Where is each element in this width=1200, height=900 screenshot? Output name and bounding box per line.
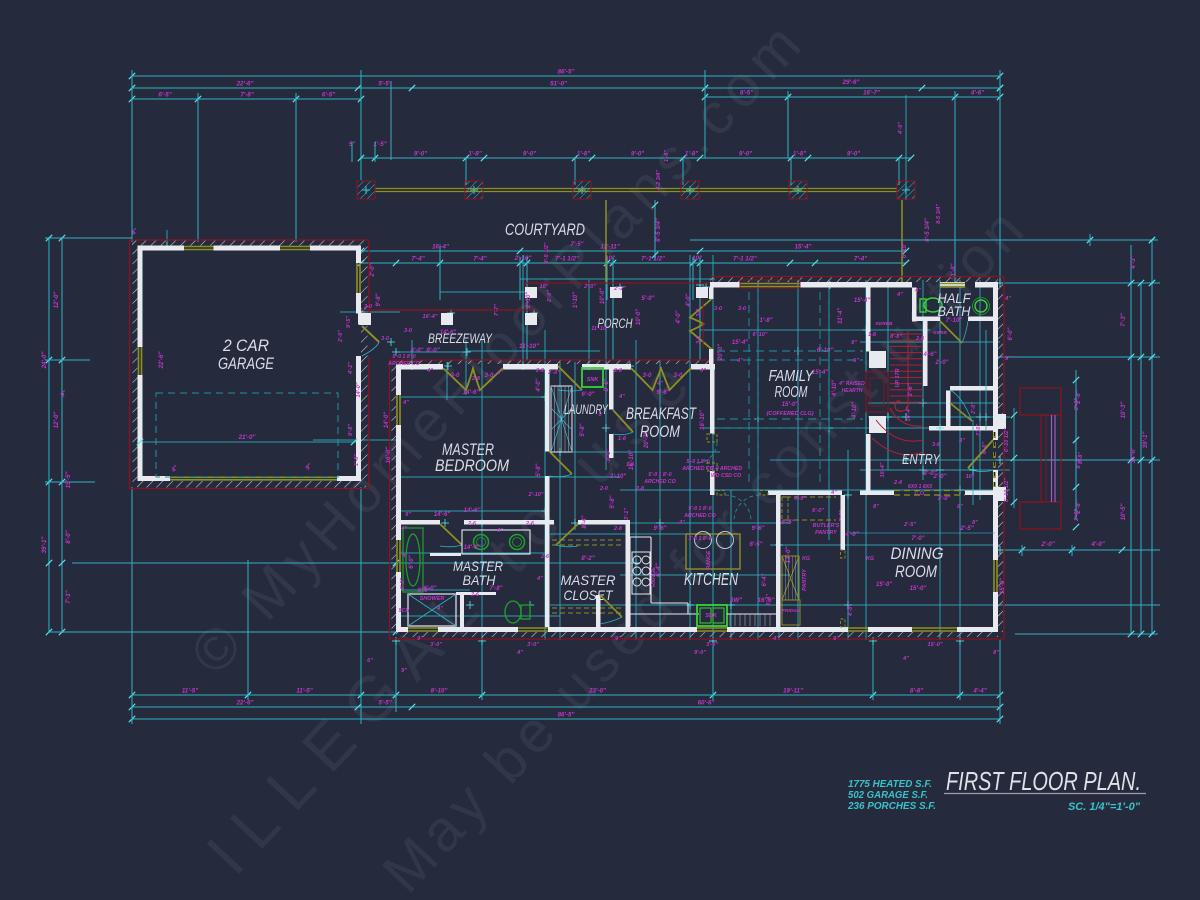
svg-text:4'-0": 4'-0" bbox=[844, 531, 858, 538]
svg-text:14'-0": 14'-0" bbox=[464, 544, 481, 551]
svg-text:4": 4" bbox=[1004, 296, 1011, 302]
svg-text:22'-6": 22'-6" bbox=[236, 81, 254, 88]
svg-text:14'-6": 14'-6" bbox=[464, 507, 481, 514]
svg-text:2'-6": 2'-6" bbox=[1074, 509, 1080, 522]
svg-text:7'-1": 7'-1" bbox=[65, 590, 72, 603]
svg-text:4": 4" bbox=[902, 656, 909, 662]
svg-text:3-6: 3-6 bbox=[932, 442, 941, 448]
svg-text:7'-0": 7'-0" bbox=[911, 535, 924, 542]
svg-text:23'-0": 23'-0" bbox=[588, 688, 606, 695]
svg-text:2-6: 2-6 bbox=[525, 521, 535, 527]
svg-text:34'-0": 34'-0" bbox=[1130, 447, 1137, 464]
svg-text:29'-6": 29'-6" bbox=[842, 79, 860, 86]
svg-text:4": 4" bbox=[402, 400, 409, 406]
svg-text:9'-5 1/2": 9'-5 1/2" bbox=[544, 242, 550, 263]
svg-text:8'-5 3/4": 8'-5 3/4" bbox=[655, 218, 662, 242]
svg-text:2'-8": 2'-8" bbox=[1074, 398, 1080, 411]
svg-text:16'-10": 16'-10" bbox=[700, 410, 706, 430]
svg-text:6'-4": 6'-4" bbox=[762, 573, 768, 586]
svg-text:6'-0": 6'-0" bbox=[982, 442, 988, 454]
svg-text:2'-5": 2'-5" bbox=[903, 522, 916, 528]
svg-text:2-8: 2-8 bbox=[613, 526, 623, 532]
svg-text:BEDROOM: BEDROOM bbox=[435, 456, 510, 475]
svg-text:86'-5": 86'-5" bbox=[558, 712, 575, 719]
svg-text:22'-6": 22'-6" bbox=[236, 700, 254, 707]
svg-text:ARCHED CO: ARCHED CO bbox=[683, 513, 715, 519]
svg-text:8'-0": 8'-0" bbox=[426, 347, 439, 354]
svg-text:16'-0": 16'-0" bbox=[385, 447, 392, 464]
svg-text:1'-8": 1'-8" bbox=[685, 151, 698, 158]
svg-text:14'-0": 14'-0" bbox=[384, 412, 390, 428]
svg-text:3'-0": 3'-0" bbox=[527, 642, 539, 648]
svg-text:22'-6": 22'-6" bbox=[158, 352, 165, 370]
svg-text:2-6: 2-6 bbox=[470, 592, 480, 598]
svg-text:6'-10": 6'-10" bbox=[817, 347, 834, 354]
svg-text:4": 4" bbox=[678, 520, 685, 526]
svg-text:6'-0": 6'-0" bbox=[1008, 327, 1014, 340]
svg-text:5'-8": 5'-8" bbox=[610, 495, 616, 508]
svg-text:5'-0 1 8'-0: 5'-0 1 8'-0 bbox=[688, 506, 711, 512]
svg-text:ENTRY: ENTRY bbox=[902, 451, 941, 468]
svg-text:FIRST FLOOR PLAN.: FIRST FLOOR PLAN. bbox=[946, 766, 1141, 796]
svg-text:5'-0 1 8'-0: 5'-0 1 8'-0 bbox=[686, 459, 709, 465]
svg-text:15'-0": 15'-0" bbox=[910, 585, 927, 592]
svg-text:3-0: 3-0 bbox=[381, 336, 389, 342]
svg-text:9": 9" bbox=[417, 636, 423, 642]
svg-text:86'-5": 86'-5" bbox=[558, 69, 575, 76]
svg-text:4'-0": 4'-0" bbox=[400, 578, 406, 591]
svg-text:8'-4": 8'-4" bbox=[582, 515, 588, 528]
svg-text:4'-3": 4'-3" bbox=[1130, 255, 1137, 269]
svg-text:12'-0": 12'-0" bbox=[53, 292, 60, 309]
svg-text:4": 4" bbox=[436, 606, 443, 612]
svg-text:3-0: 3-0 bbox=[404, 328, 412, 334]
svg-text:2-8: 2-8 bbox=[915, 336, 925, 342]
svg-text:7'-5": 7'-5" bbox=[571, 242, 584, 248]
svg-text:SC. 1/4"=1'-0": SC. 1/4"=1'-0" bbox=[1068, 801, 1141, 813]
svg-text:ARCHED CO: ARCHED CO bbox=[387, 361, 419, 367]
svg-text:8-5 3/4": 8-5 3/4" bbox=[936, 204, 942, 224]
svg-text:1'-8": 1'-8" bbox=[664, 150, 670, 162]
svg-text:6'-5": 6'-5" bbox=[158, 92, 171, 99]
svg-text:6'-5": 6'-5" bbox=[750, 542, 763, 548]
svg-text:6'-5": 6'-5" bbox=[782, 520, 795, 526]
svg-text:10": 10" bbox=[540, 284, 549, 290]
svg-text:4": 4" bbox=[618, 394, 625, 400]
svg-text:HEARTH: HEARTH bbox=[842, 388, 863, 394]
svg-text:8'-6": 8'-6" bbox=[604, 378, 610, 391]
svg-text:15'-4": 15'-4" bbox=[795, 244, 812, 251]
svg-text:14'-0": 14'-0" bbox=[356, 382, 362, 397]
svg-text:15'-0": 15'-0" bbox=[928, 642, 943, 648]
svg-text:3'-4": 3'-4" bbox=[766, 594, 772, 606]
svg-text:10": 10" bbox=[966, 474, 975, 480]
svg-text:8'-0": 8'-0" bbox=[65, 530, 72, 543]
svg-text:LAUNDRY: LAUNDRY bbox=[564, 402, 609, 417]
svg-text:8'-2": 8'-2" bbox=[581, 555, 594, 562]
svg-text:3-0: 3-0 bbox=[696, 309, 702, 317]
svg-text:1775 HEATED S.F.: 1775 HEATED S.F. bbox=[848, 779, 932, 790]
svg-text:4'-0": 4'-0" bbox=[686, 293, 692, 307]
svg-text:PANTRY: PANTRY bbox=[802, 569, 808, 591]
svg-text:6'-0": 6'-0" bbox=[812, 508, 824, 514]
svg-text:8'-8": 8'-8" bbox=[890, 334, 902, 340]
svg-text:4" RAISED: 4" RAISED bbox=[838, 381, 865, 387]
svg-text:11'-5": 11'-5" bbox=[296, 688, 312, 695]
svg-text:6'-10 1/2": 6'-10 1/2" bbox=[1004, 428, 1010, 452]
svg-text:2'-10": 2'-10" bbox=[609, 474, 626, 480]
svg-text:4": 4" bbox=[516, 650, 523, 656]
svg-text:24'-0": 24'-0" bbox=[41, 352, 48, 370]
svg-text:FRIDGE: FRIDGE bbox=[782, 608, 801, 614]
svg-text:7'-3": 7'-3" bbox=[1120, 313, 1127, 326]
svg-text:2'-0": 2'-0" bbox=[971, 402, 977, 415]
svg-text:5CH: 5CH bbox=[399, 608, 410, 614]
svg-text:10'-5": 10'-5" bbox=[1120, 504, 1127, 521]
svg-text:5'-8": 5'-8" bbox=[580, 423, 586, 436]
svg-text:8'-5 3/4": 8'-5 3/4" bbox=[924, 218, 931, 242]
svg-text:3-0: 3-0 bbox=[643, 372, 653, 379]
svg-text:6'-0": 6'-0" bbox=[794, 496, 806, 502]
svg-text:1'-8": 1'-8" bbox=[468, 151, 481, 158]
svg-text:2-8: 2-8 bbox=[613, 368, 623, 374]
svg-text:9": 9" bbox=[405, 512, 411, 518]
svg-text:6'-0": 6'-0" bbox=[582, 392, 595, 398]
svg-text:ARCHED CO: ARCHED CO bbox=[681, 466, 713, 472]
svg-text:6'-4": 6'-4" bbox=[655, 563, 662, 576]
svg-text:15'-4": 15'-4" bbox=[812, 370, 828, 376]
svg-text:KG: KG bbox=[802, 556, 810, 562]
svg-text:8": 8" bbox=[873, 504, 879, 510]
svg-text:4'-10": 4'-10" bbox=[832, 380, 838, 397]
svg-text:31'-4": 31'-4" bbox=[838, 308, 844, 324]
svg-text:4'-10": 4'-10" bbox=[852, 402, 858, 419]
svg-text:4": 4" bbox=[402, 551, 408, 558]
svg-text:3-0: 3-0 bbox=[451, 372, 461, 379]
svg-text:14'-6": 14'-6" bbox=[434, 512, 450, 518]
svg-text:9'-0": 9'-0" bbox=[694, 650, 706, 656]
svg-text:10'-3": 10'-3" bbox=[1120, 402, 1127, 419]
svg-text:5'-8": 5'-8" bbox=[536, 463, 542, 476]
svg-text:2-6: 2-6 bbox=[467, 521, 477, 527]
svg-text:20'-0": 20'-0" bbox=[718, 344, 724, 361]
svg-text:11'-11": 11'-11" bbox=[600, 244, 619, 251]
svg-text:4": 4" bbox=[496, 370, 503, 376]
svg-text:4'-6": 4'-6" bbox=[970, 90, 984, 97]
svg-text:3'-6": 3'-6" bbox=[907, 383, 914, 396]
svg-text:6'-0": 6'-0" bbox=[424, 586, 437, 592]
svg-text:15'-0": 15'-0" bbox=[876, 582, 892, 588]
svg-text:5'-5": 5'-5" bbox=[378, 81, 391, 88]
svg-text:16'-7": 16'-7" bbox=[863, 90, 880, 97]
svg-text:2-6: 2-6 bbox=[540, 554, 550, 560]
svg-text:2-8: 2-8 bbox=[535, 368, 545, 374]
svg-text:9'-6": 9'-6" bbox=[752, 526, 765, 532]
svg-text:7'-4": 7'-4" bbox=[473, 256, 486, 263]
svg-text:11'-10": 11'-10" bbox=[519, 343, 539, 350]
svg-text:1'-10": 1'-10" bbox=[573, 292, 579, 308]
svg-text:9'-0": 9'-0" bbox=[523, 151, 536, 158]
svg-text:5'-0": 5'-0" bbox=[642, 296, 655, 302]
svg-text:3'-0": 3'-0" bbox=[430, 642, 442, 648]
svg-text:4": 4" bbox=[426, 368, 433, 374]
svg-text:MASTER: MASTER bbox=[561, 572, 616, 588]
svg-text:1'-8": 1'-8" bbox=[354, 454, 360, 466]
svg-text:4": 4" bbox=[736, 358, 743, 364]
svg-text:2-4: 2-4 bbox=[893, 480, 902, 486]
svg-text:9'-5": 9'-5" bbox=[346, 316, 352, 328]
svg-text:9'-8": 9'-8" bbox=[376, 293, 382, 306]
svg-text:10'-0": 10'-0" bbox=[600, 288, 606, 304]
svg-text:4": 4" bbox=[830, 490, 837, 496]
svg-text:6X0 1 8X0: 6X0 1 8X0 bbox=[908, 484, 932, 490]
svg-text:14'-6": 14'-6" bbox=[463, 389, 480, 396]
svg-text:4'-0": 4'-0" bbox=[536, 378, 542, 392]
svg-text:19'-5": 19'-5" bbox=[65, 472, 72, 489]
svg-text:7'-0": 7'-0" bbox=[938, 496, 951, 502]
svg-text:7'-1 1/2": 7'-1 1/2" bbox=[555, 256, 579, 263]
svg-text:DINING: DINING bbox=[891, 545, 944, 563]
svg-text:60'-6": 60'-6" bbox=[698, 700, 715, 707]
svg-text:8'-5": 8'-5" bbox=[740, 90, 753, 97]
svg-text:PANTRY: PANTRY bbox=[815, 530, 837, 536]
svg-text:11'-10": 11'-10" bbox=[591, 326, 609, 332]
svg-text:6'-10": 6'-10" bbox=[753, 332, 768, 338]
svg-text:9": 9" bbox=[833, 636, 839, 642]
svg-text:KERBB: KERBB bbox=[875, 321, 893, 327]
svg-text:KITCHEN: KITCHEN bbox=[684, 569, 738, 589]
svg-text:20'-7": 20'-7" bbox=[644, 432, 650, 449]
svg-text:2'-2": 2'-2" bbox=[613, 286, 626, 292]
svg-text:8": 8" bbox=[972, 520, 978, 526]
svg-text:5'-0 1 8'-0: 5'-0 1 8'-0 bbox=[392, 354, 415, 360]
svg-text:8": 8" bbox=[993, 650, 999, 656]
svg-text:4": 4" bbox=[536, 576, 543, 582]
svg-text:9'-6": 9'-6" bbox=[654, 526, 667, 532]
svg-text:9'-0": 9'-0" bbox=[631, 151, 644, 158]
svg-text:5'-0 ARCHED: 5'-0 ARCHED bbox=[710, 466, 742, 472]
svg-text:21'-0": 21'-0" bbox=[238, 434, 256, 441]
svg-text:ROOM: ROOM bbox=[775, 384, 808, 401]
svg-text:BUTLER'S: BUTLER'S bbox=[813, 523, 840, 529]
svg-text:236 PORCHES S.F.: 236 PORCHES S.F. bbox=[847, 801, 936, 812]
svg-text:8": 8" bbox=[957, 504, 963, 510]
svg-text:39'-1": 39'-1" bbox=[1142, 432, 1149, 449]
svg-text:9": 9" bbox=[401, 668, 407, 674]
svg-text:5'-5": 5'-5" bbox=[378, 700, 391, 707]
svg-text:WD CSD CO: WD CSD CO bbox=[711, 473, 741, 479]
svg-text:15'-0": 15'-0" bbox=[782, 401, 799, 408]
svg-text:4": 4" bbox=[896, 292, 903, 298]
svg-text:7'-8": 7'-8" bbox=[490, 586, 503, 592]
svg-text:9'-0": 9'-0" bbox=[847, 151, 860, 158]
svg-text:3-0: 3-0 bbox=[485, 372, 495, 379]
svg-text:5'-0 1 8'-0: 5'-0 1 8'-0 bbox=[648, 472, 671, 478]
svg-text:2'-0": 2'-0" bbox=[583, 284, 596, 290]
svg-text:2'-10": 2'-10" bbox=[526, 292, 532, 309]
svg-text:3-0: 3-0 bbox=[738, 306, 746, 312]
svg-text:UP 17R: UP 17R bbox=[895, 368, 901, 387]
svg-text:4-2 3/4": 4-2 3/4" bbox=[656, 170, 662, 191]
svg-text:2'-0": 2'-0" bbox=[370, 263, 376, 277]
svg-text:502 GARAGE S.F.: 502 GARAGE S.F. bbox=[848, 790, 928, 801]
svg-text:4": 4" bbox=[699, 368, 706, 374]
svg-text:8'-8": 8'-8" bbox=[910, 688, 923, 695]
svg-text:2-8: 2-8 bbox=[635, 486, 645, 492]
svg-text:1-8: 1-8 bbox=[618, 436, 627, 442]
svg-text:2'-5": 2'-5" bbox=[959, 525, 973, 532]
svg-text:2-8: 2-8 bbox=[471, 376, 481, 382]
svg-text:2'-0": 2'-0" bbox=[976, 424, 982, 437]
svg-text:4'-2": 4'-2" bbox=[348, 362, 354, 375]
svg-text:3-0: 3-0 bbox=[696, 336, 702, 344]
svg-text:3-0: 3-0 bbox=[364, 304, 372, 310]
svg-text:COURTYARD: COURTYARD bbox=[505, 220, 585, 239]
svg-text:2'-0": 2'-0" bbox=[547, 290, 553, 303]
svg-text:16'-4": 16'-4" bbox=[432, 244, 449, 251]
svg-text:(COFFERED CLG): (COFFERED CLG) bbox=[766, 411, 813, 417]
svg-text:4": 4" bbox=[656, 381, 663, 387]
svg-text:6'-10 1/2": 6'-10 1/2" bbox=[1004, 478, 1010, 502]
svg-text:1'-8": 1'-8" bbox=[951, 263, 957, 276]
svg-text:SHOWER: SHOWER bbox=[420, 596, 445, 602]
svg-text:6": 6" bbox=[853, 358, 859, 364]
svg-text:11'-5": 11'-5" bbox=[182, 688, 198, 695]
svg-text:1'-8": 1'-8" bbox=[760, 318, 773, 324]
svg-text:6'-0": 6'-0" bbox=[408, 555, 415, 568]
svg-text:15'-8": 15'-8" bbox=[1000, 578, 1006, 594]
svg-text:FAMILY: FAMILY bbox=[769, 368, 815, 385]
svg-text:2'-0": 2'-0" bbox=[1040, 541, 1054, 548]
svg-text:16'-4": 16'-4" bbox=[906, 406, 912, 421]
svg-text:9": 9" bbox=[615, 636, 621, 642]
svg-text:9'-0": 9'-0" bbox=[739, 151, 752, 158]
svg-text:4": 4" bbox=[772, 636, 779, 642]
svg-text:3'-0": 3'-0" bbox=[606, 448, 612, 461]
svg-text:3'-0": 3'-0" bbox=[706, 642, 718, 648]
svg-text:4": 4" bbox=[958, 438, 965, 444]
svg-text:8'-10": 8'-10" bbox=[431, 688, 448, 695]
svg-text:15'-4": 15'-4" bbox=[854, 298, 870, 304]
svg-text:2'-0": 2'-0" bbox=[933, 474, 947, 480]
svg-text:9'-8": 9'-8" bbox=[348, 424, 354, 436]
svg-text:3-0: 3-0 bbox=[674, 372, 684, 379]
svg-text:ARCHED CO: ARCHED CO bbox=[643, 479, 675, 485]
svg-text:1-8: 1-8 bbox=[868, 332, 877, 338]
svg-text:4'-4": 4'-4" bbox=[972, 688, 986, 695]
svg-text:3'-1": 3'-1" bbox=[624, 508, 630, 520]
svg-text:16'-4": 16'-4" bbox=[880, 462, 886, 477]
svg-text:4": 4" bbox=[914, 288, 921, 294]
svg-text:15'-4": 15'-4" bbox=[732, 340, 748, 346]
svg-text:ROOM: ROOM bbox=[895, 563, 937, 581]
svg-text:7'-4": 7'-4" bbox=[411, 256, 424, 263]
svg-text:8'-8": 8'-8" bbox=[1078, 452, 1084, 464]
svg-text:7'-8": 7'-8" bbox=[240, 92, 253, 99]
svg-text:BREEZEWAY: BREEZEWAY bbox=[428, 331, 493, 346]
svg-text:SNK: SNK bbox=[705, 613, 718, 619]
svg-text:6'-5": 6'-5" bbox=[322, 92, 335, 99]
svg-text:3'-0 1 8'-0: 3'-0 1 8'-0 bbox=[688, 536, 711, 542]
svg-text:9'-6": 9'-6" bbox=[656, 389, 669, 396]
svg-text:9'-0": 9'-0" bbox=[414, 151, 427, 158]
svg-text:7'-1 1/2": 7'-1 1/2" bbox=[733, 256, 757, 263]
svg-text:14'-6": 14'-6" bbox=[440, 330, 456, 336]
svg-text:3-0: 3-0 bbox=[714, 306, 722, 312]
svg-text:7'-10": 7'-10" bbox=[946, 317, 963, 324]
svg-text:51'-0": 51'-0" bbox=[550, 81, 567, 88]
svg-text:4'-0": 4'-0" bbox=[1090, 541, 1104, 548]
svg-text:7'-4": 7'-4" bbox=[854, 256, 867, 263]
svg-text:19'-11": 19'-11" bbox=[783, 688, 803, 695]
svg-text:2 CAR: 2 CAR bbox=[222, 336, 269, 355]
svg-text:2-0: 2-0 bbox=[599, 486, 608, 492]
svg-text:4": 4" bbox=[400, 526, 407, 532]
svg-text:KG: KG bbox=[866, 556, 874, 562]
svg-text:GARAGE: GARAGE bbox=[218, 354, 275, 373]
svg-text:4": 4" bbox=[496, 528, 503, 534]
svg-text:KERB: KERB bbox=[933, 330, 947, 336]
svg-text:1'-8": 1'-8" bbox=[577, 151, 590, 158]
svg-text:2'-10": 2'-10" bbox=[528, 492, 544, 498]
svg-text:9": 9" bbox=[1005, 356, 1011, 362]
svg-text:6": 6" bbox=[367, 658, 373, 664]
svg-text:7'-7": 7'-7" bbox=[494, 304, 500, 316]
svg-text:SNK: SNK bbox=[587, 377, 600, 383]
svg-text:0: 0 bbox=[598, 412, 601, 418]
svg-text:1'-8": 1'-8" bbox=[793, 151, 806, 158]
svg-text:2'-0": 2'-0" bbox=[338, 330, 344, 343]
svg-text:1-8: 1-8 bbox=[626, 462, 635, 468]
svg-text:9": 9" bbox=[851, 340, 857, 346]
svg-text:13'-0": 13'-0" bbox=[785, 547, 792, 564]
svg-text:RANGE: RANGE bbox=[706, 550, 712, 569]
svg-text:3W": 3W" bbox=[730, 597, 742, 604]
svg-text:8'-0": 8'-0" bbox=[411, 348, 424, 354]
svg-text:10'-0": 10'-0" bbox=[636, 309, 642, 325]
svg-text:C.O.: C.O. bbox=[915, 491, 926, 497]
svg-text:BREAKFAST: BREAKFAST bbox=[626, 404, 697, 423]
svg-text:4'-0": 4'-0" bbox=[676, 310, 682, 324]
svg-text:2'-0": 2'-0" bbox=[935, 360, 949, 366]
svg-text:12'-0": 12'-0" bbox=[53, 412, 60, 429]
svg-text:6'-10": 6'-10" bbox=[902, 242, 908, 258]
svg-text:4'-6": 4'-6" bbox=[923, 352, 937, 358]
svg-text:4'-0": 4'-0" bbox=[848, 604, 854, 617]
svg-text:16'-4": 16'-4" bbox=[423, 314, 438, 320]
svg-text:2'-0": 2'-0" bbox=[547, 370, 560, 376]
svg-text:39'-1": 39'-1" bbox=[41, 537, 48, 554]
svg-text:4'-0": 4'-0" bbox=[898, 122, 904, 135]
